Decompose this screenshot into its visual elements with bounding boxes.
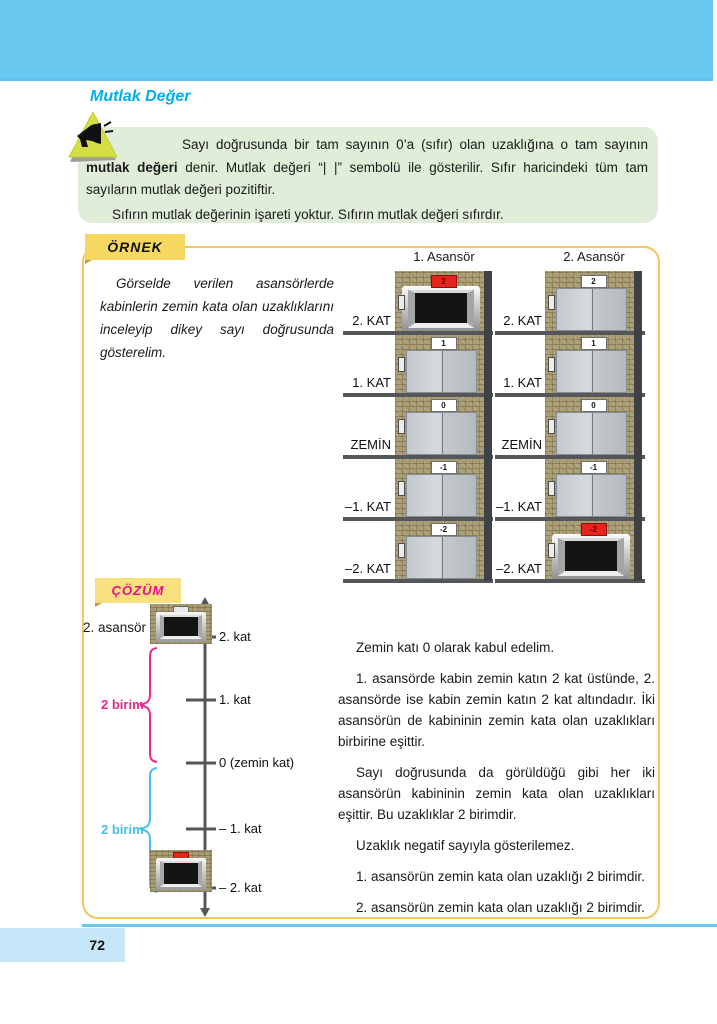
explanation-paragraph: 1. asansörde kabin zemin katın 2 kat üst… [338, 668, 655, 752]
footer-divider [82, 924, 717, 927]
call-panel-icon [548, 543, 555, 558]
call-panel-icon [398, 419, 405, 434]
explanation-paragraph: Zemin katı 0 olarak kabul edelim. [338, 637, 655, 658]
header-band [0, 0, 713, 81]
closed-doors [556, 412, 627, 455]
elevator2-floor-2: 2 [545, 271, 642, 333]
shaft-edge [634, 271, 642, 581]
number-line-elevator-label: 2. asansör [64, 620, 146, 635]
call-panel-icon [548, 295, 555, 310]
explanation-paragraph: 1. asansörün zemin kata olan uzaklığı 2 … [338, 866, 655, 887]
elevator2-floor-0: 0 [545, 395, 642, 457]
floor-indicator: -2 [581, 523, 607, 536]
elevator2-diagram: 2 1 0 -1 -2 [545, 271, 642, 581]
closed-doors [406, 350, 477, 393]
floor-indicator: 2 [431, 275, 457, 288]
elevator1-title: 1. Asansör [389, 249, 499, 264]
floor-label: –2. KAT [470, 561, 542, 576]
floor-indicator: 0 [431, 399, 457, 412]
floor-label: 1. KAT [319, 375, 391, 390]
mini-elevator-top [150, 604, 212, 644]
shaft-edge [484, 271, 492, 581]
floor-line [495, 455, 645, 459]
open-cabin [552, 534, 630, 580]
definition-paragraph-2: Sıfırın mutlak değerinin işareti yoktur.… [86, 204, 648, 227]
cozum-tag: ÇÖZÜM [95, 578, 181, 603]
closed-doors [406, 412, 477, 455]
page-number-box: 72 [0, 928, 125, 962]
floor-indicator: -1 [581, 461, 607, 474]
floor-indicator: 2 [581, 275, 607, 288]
floor-label: ZEMİN [470, 437, 542, 452]
explanation-paragraph: Sayı doğrusunda da görüldüğü gibi her ik… [338, 762, 655, 825]
tick-label: – 2. kat [219, 880, 262, 895]
call-panel-icon [548, 357, 555, 372]
closed-doors [556, 474, 627, 517]
call-panel-icon [548, 481, 555, 496]
floor-line [343, 393, 493, 397]
definition-paragraph-1: Sayı doğrusunda bir tam sayının 0’a (sıf… [86, 134, 648, 202]
ornek-tag: ÖRNEK [85, 234, 185, 260]
elevator2-floor--2: -2 [545, 519, 642, 581]
tick-label: – 1. kat [219, 821, 262, 836]
call-panel-icon [398, 357, 405, 372]
example-question: Görselde verilen asansörlerde kabinlerin… [100, 272, 334, 364]
megaphone-icon [66, 110, 120, 164]
floor-indicator: -1 [431, 461, 457, 474]
call-panel-icon [398, 481, 405, 496]
closed-doors [556, 288, 627, 331]
floor-indicator: -2 [431, 523, 457, 536]
tick-label: 2. kat [219, 629, 251, 644]
floor-label: –2. KAT [319, 561, 391, 576]
brace-top-label: 2 birim [101, 697, 144, 712]
closed-doors [406, 536, 477, 579]
floor-label: ZEMİN [319, 437, 391, 452]
floor-label: 2. KAT [470, 313, 542, 328]
floor-line [343, 517, 493, 521]
floor-line [495, 393, 645, 397]
closed-doors [556, 350, 627, 393]
solution-explanation: Zemin katı 0 olarak kabul edelim. 1. asa… [338, 637, 655, 928]
floor-indicator: 1 [581, 337, 607, 350]
definition-box: Sayı doğrusunda bir tam sayının 0’a (sıf… [78, 127, 658, 223]
floor-line [343, 579, 493, 583]
textbook-page: Mutlak Değer Sayı doğrusunda bir tam say… [0, 0, 717, 1024]
open-cabin [402, 286, 480, 332]
elevator2-floor--1: -1 [545, 457, 642, 519]
floor-indicator: 0 [581, 399, 607, 412]
page-title: Mutlak Değer [90, 88, 190, 106]
floor-label: 1. KAT [470, 375, 542, 390]
call-panel-icon [398, 543, 405, 558]
call-panel-icon [398, 295, 405, 310]
floor-line [495, 579, 645, 583]
floor-line [343, 331, 493, 335]
floor-line [495, 517, 645, 521]
page-number: 72 [89, 928, 105, 962]
explanation-paragraph: Uzaklık negatif sayıyla gösterilemez. [338, 835, 655, 856]
mini-elevator-bottom [150, 850, 212, 892]
floor-indicator: 1 [431, 337, 457, 350]
call-panel-icon [548, 419, 555, 434]
tick-label: 0 (zemin kat) [219, 755, 294, 770]
closed-doors [406, 474, 477, 517]
floor-label: –1. KAT [470, 499, 542, 514]
floor-line [495, 331, 645, 335]
tick-label: 1. kat [219, 692, 251, 707]
floor-line [343, 455, 493, 459]
elevator2-title: 2. Asansör [539, 249, 649, 264]
floor-label: 2. KAT [319, 313, 391, 328]
floor-label: –1. KAT [319, 499, 391, 514]
explanation-paragraph: 2. asansörün zemin kata olan uzaklığı 2 … [338, 897, 655, 918]
brace-bottom-label: 2 birim [101, 822, 144, 837]
elevator2-floor-1: 1 [545, 333, 642, 395]
